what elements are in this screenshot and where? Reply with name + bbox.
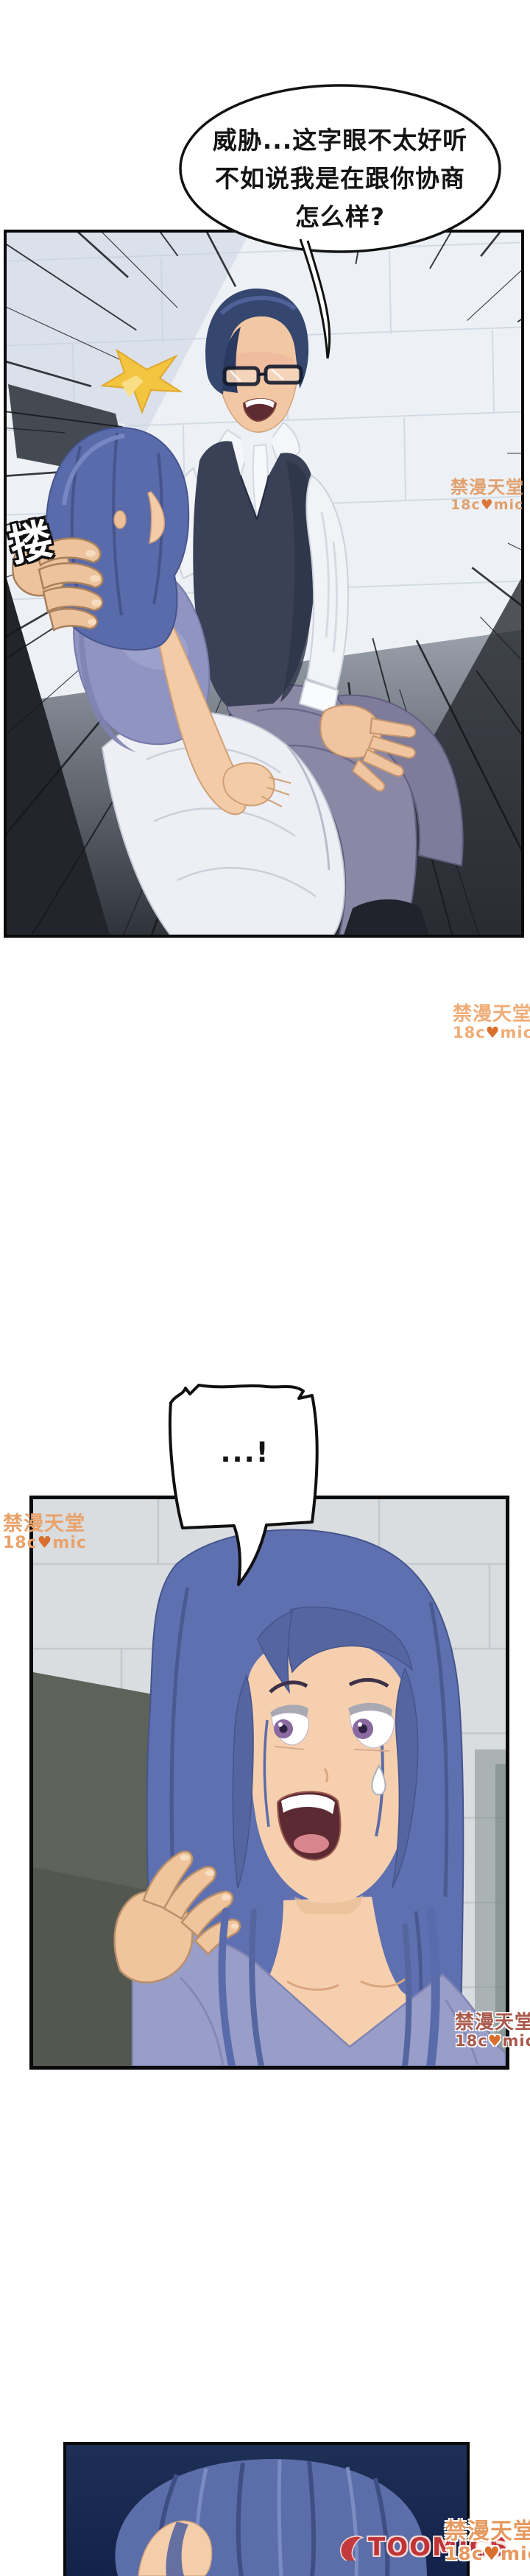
speech-bubble-text: 威胁...这字眼不太好听 不如说我是在跟你协商 怎么样? [185,121,495,236]
watermark-18comic-panel2-bottomright: 禁漫天堂 18c♥mic [455,2012,530,2050]
comic-page: 威胁...这字眼不太好听 不如说我是在跟你协商 怎么样? 搂 禁漫天堂 18c♥… [0,0,530,2576]
shock-bubble-text: ...! [186,1437,304,1468]
heart-icon: ♥ [38,1534,53,1552]
heart-icon: ♥ [486,1024,501,1041]
woman-face [247,1636,414,1903]
shock-bubble [156,1378,333,1588]
watermark-18comic-panel2-topleft: 禁漫天堂 18c♥mic [3,1513,87,1552]
heart-icon: ♥ [488,2032,503,2050]
watermark-18comic-panel1: 禁漫天堂 18c♥mic [451,478,524,512]
speech-bubble-tail [300,239,330,358]
watermark-18comic-panel3: 禁漫天堂 18c♥mic [445,2520,530,2563]
speech-line-2: 不如说我是在跟你协商 [185,160,495,198]
heart-icon: ♥ [481,497,494,513]
heart-icon: ♥ [484,2543,501,2564]
toomics-logo-icon [337,2534,365,2561]
watermark-18comic-gap: 禁漫天堂 18c♥mic [453,1004,530,1041]
speech-line-1: 威胁...这字眼不太好听 [185,121,495,160]
speech-line-3: 怎么样? [185,198,495,236]
